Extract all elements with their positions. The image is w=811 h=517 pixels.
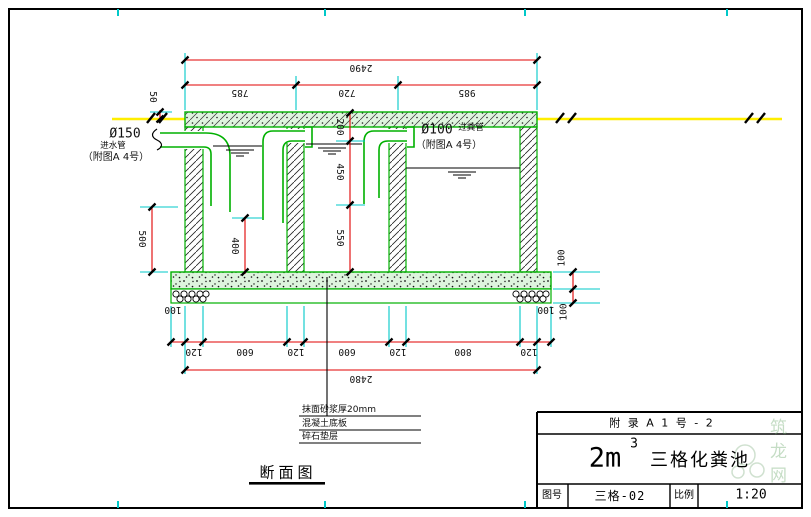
dim-bottom-seg: 600 [338,346,355,356]
dim-overhang-right: 100 [537,304,554,314]
dimension-ticks [149,57,577,374]
dim-base-layer: 100 [557,249,567,266]
view-title: 断面图 [259,466,316,481]
dim-mid: 450 [334,163,344,180]
dimension-lines [152,60,573,370]
dim-base-layer: 100 [559,303,569,320]
view-title-underline [249,482,325,485]
titleblock-appendix: 附 录 A 1 号 - 2 [609,418,714,429]
titleblock-drawing-no-label: 图号 [542,491,562,501]
dim-bottom-seg: 120 [520,346,537,356]
titleblock-volume: 2m [589,445,622,472]
inlet-pipe-name-label: 进水管 [100,142,126,151]
titleblock-scale-label: 比例 [674,491,694,501]
dim-top-seg: 785 [231,87,248,97]
titleblock-volume-sup: 3 [630,438,638,451]
crossover-pipe-name-label: 过粪管 [458,124,484,133]
dim-mid: 550 [334,229,344,246]
dim-bottom-seg: 120 [287,346,304,356]
dim-top-seg: 985 [458,87,475,97]
note-surface-mortar: 抹面砂浆厚20mm [302,406,376,415]
dim-bottom-seg: 800 [454,346,471,356]
dim-overhang-left: 100 [164,304,181,314]
note-concrete-slab: 混凝土底板 [302,420,347,429]
drawing-canvas [0,0,811,517]
crossover-pipe-ref-label: （附图A 4号） [416,141,482,151]
dim-bottom-seg: 120 [389,346,406,356]
cad-drawing-sheet: 2490 785 720 985 50 500 400 200 450 550 … [0,0,811,517]
titleblock-drawing-no: 三格-02 [595,490,646,502]
dim-comp1-depth: 400 [229,237,239,254]
inlet-pipe-dia-label: Ø150 [109,128,140,141]
titleblock-product: 三格化粪池 [650,452,750,470]
dim-top-seg: 720 [338,87,355,97]
dim-bottom-seg: 600 [236,346,253,356]
crossover-pipe-dia-label: Ø100 [421,124,452,137]
inlet-pipe-ref-label: （附图A 4号） [83,153,149,163]
dim-bottom-total: 2480 [350,373,373,383]
titleblock-scale-value: 1:20 [735,489,766,502]
dim-left-depth: 500 [136,230,146,247]
dim-top-total: 2490 [350,62,373,72]
watermark-text: 筑龙网 [764,418,789,510]
dim-mid: 200 [334,118,344,135]
note-gravel-cushion: 碎石垫层 [302,433,338,442]
dim-ground-offset: 50 [147,91,157,102]
dim-bottom-seg: 120 [185,346,202,356]
